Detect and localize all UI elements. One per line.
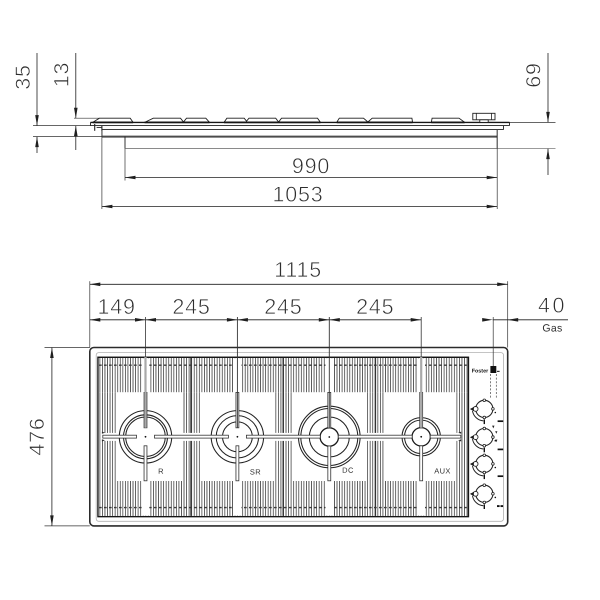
svg-text:245: 245 xyxy=(356,295,394,319)
svg-text:13: 13 xyxy=(50,62,74,88)
svg-text:R: R xyxy=(158,467,164,476)
svg-text:149: 149 xyxy=(97,295,135,319)
svg-text:990: 990 xyxy=(292,154,330,178)
svg-text:245: 245 xyxy=(172,295,210,319)
svg-text:AUX: AUX xyxy=(434,466,451,475)
svg-text:Gas: Gas xyxy=(542,322,562,334)
svg-text:Foster: Foster xyxy=(472,368,489,374)
svg-text:69: 69 xyxy=(522,62,546,88)
svg-text:DC: DC xyxy=(342,466,354,475)
svg-text:245: 245 xyxy=(264,295,302,319)
svg-text:35: 35 xyxy=(11,64,35,90)
svg-text:40: 40 xyxy=(538,293,567,317)
svg-text:SR: SR xyxy=(250,467,261,476)
svg-text:1115: 1115 xyxy=(274,258,322,282)
svg-text:1053: 1053 xyxy=(272,182,323,206)
svg-text:476: 476 xyxy=(25,417,49,455)
